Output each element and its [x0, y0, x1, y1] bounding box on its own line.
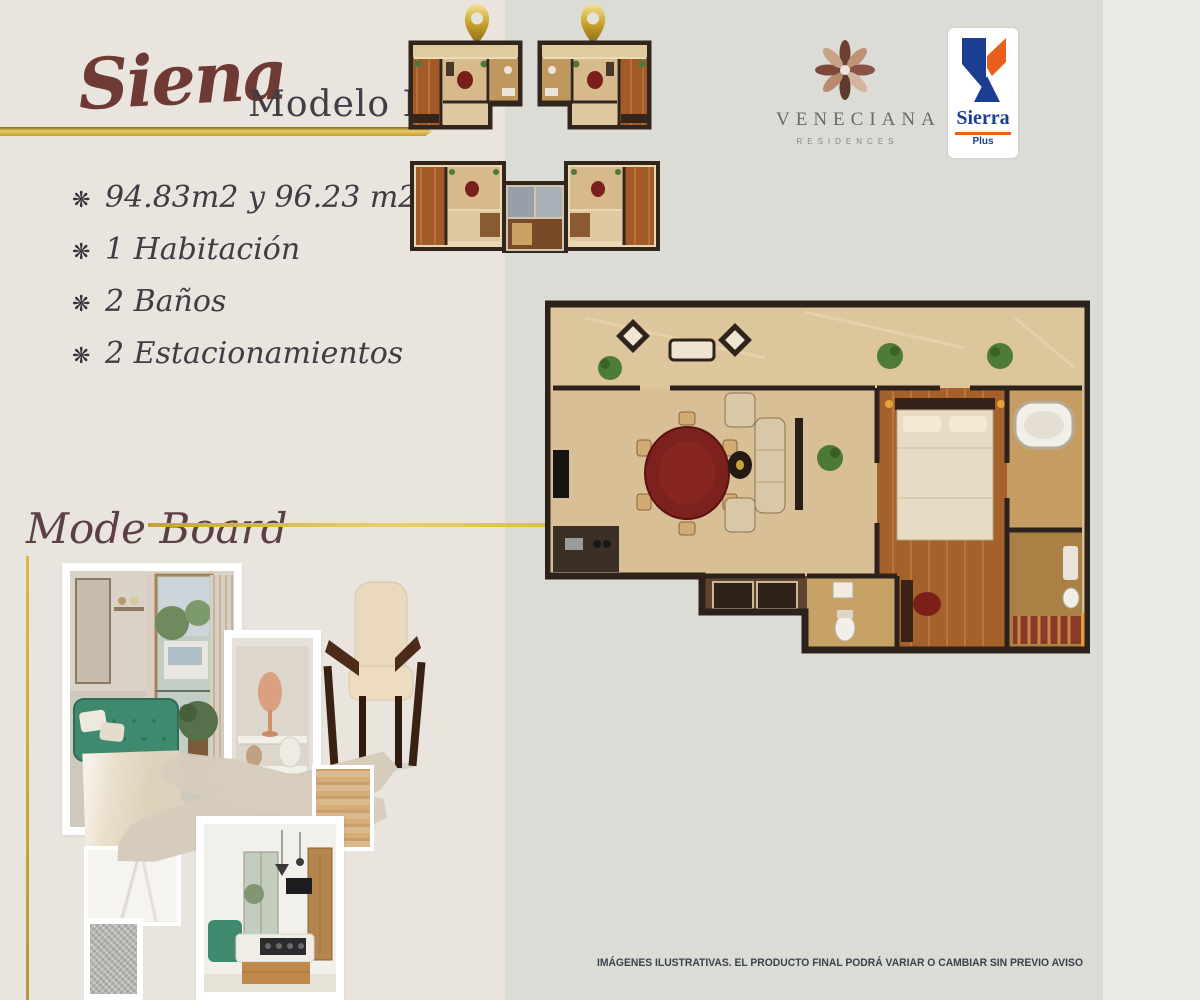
photo-kitchen [196, 816, 344, 1000]
disclaimer-text: IMÁGENES ILUSTRATIVAS. EL PRODUCTO FINAL… [596, 957, 1085, 969]
background-right-panel [1103, 0, 1200, 1000]
modeboard-title: Mode Board [26, 504, 288, 553]
feature-label: 94.83m2 y 96.23 m2 [105, 180, 417, 215]
modeboard-vertical-line [26, 556, 29, 1000]
swatch-granite [84, 918, 143, 1000]
sierra-sub: Plus [948, 136, 1018, 147]
asterisk-bullet-icon: ❋ [72, 343, 105, 369]
rug [1013, 613, 1089, 647]
floorplan-large [545, 298, 1090, 666]
feature-label: 1 Habitación [105, 232, 300, 267]
sierra-divider [955, 132, 1011, 135]
feature-item: ❋ 2 Baños [72, 284, 472, 316]
asterisk-bullet-icon: ❋ [72, 291, 105, 317]
modeboard-connector-line [148, 523, 545, 527]
gold-divider-line [0, 127, 432, 136]
feature-item: ❋ 2 Estacionamientos [72, 336, 472, 368]
floorplan-thumb-combined [410, 147, 660, 253]
veneciana-logo: VENECIANA RESIDENCES [770, 40, 920, 146]
sierra-logo-card: Sierra Plus [948, 28, 1018, 158]
feature-label: 2 Estacionamientos [105, 336, 403, 371]
asterisk-bullet-icon: ❋ [72, 239, 105, 265]
veneciana-tagline: RESIDENCES [770, 137, 920, 146]
asterisk-bullet-icon: ❋ [72, 187, 105, 213]
bed [885, 398, 1005, 540]
floorplan-thumb-right [537, 40, 652, 130]
armchair-image [315, 578, 430, 774]
veneciana-flower-icon [815, 40, 875, 100]
floorplan-thumb-left [408, 40, 523, 130]
sierra-name: Sierra [948, 107, 1018, 130]
veneciana-name: VENECIANA [770, 109, 920, 131]
feature-label: 2 Baños [105, 284, 226, 319]
sierra-mountain-icon [958, 36, 1008, 104]
